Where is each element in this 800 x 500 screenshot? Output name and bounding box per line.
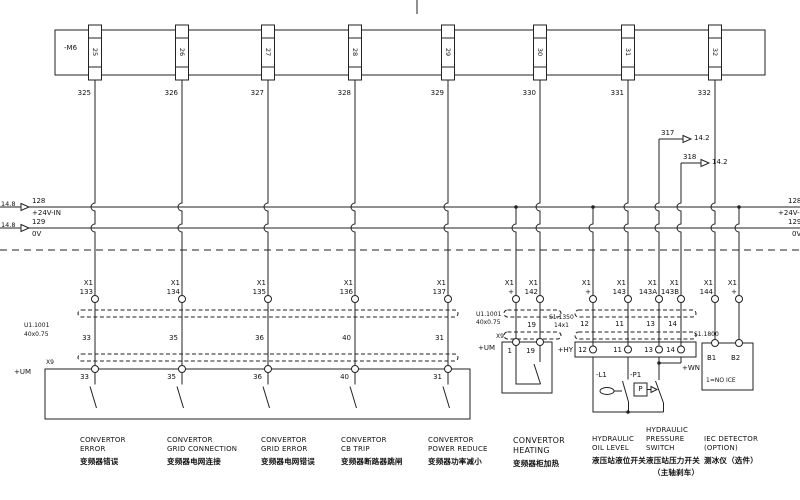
caption-line: SWITCH	[646, 444, 700, 453]
cable-wire-number: 19	[527, 321, 536, 329]
x1-label: X1	[670, 279, 679, 287]
x1-label: X1	[84, 279, 93, 287]
box-terminal-number: 19	[526, 347, 535, 355]
x1-label: X1	[529, 279, 538, 287]
caption-line: CONVERTOR	[428, 436, 488, 445]
iec-device-tag: S1.1800	[694, 331, 719, 339]
device-tag-level-switch: -L1	[596, 371, 607, 379]
bus-number-right: 129	[788, 218, 800, 226]
caption-line: CONVERTOR	[167, 436, 237, 445]
caption-iec-detector: IEC DETECTOR (OPTION) 测冰仪（选件）	[704, 435, 758, 465]
wire-number: 326	[165, 89, 178, 97]
bus-label: 0V	[32, 230, 41, 238]
connector-label: X9	[496, 333, 504, 341]
box-terminal-number: 36	[253, 373, 262, 381]
caption-convertor-error: CONVERTOR ERROR 变频器错误	[80, 436, 126, 466]
x1-terminal-number: 135	[253, 288, 266, 296]
x1-terminal-number: +	[731, 288, 737, 296]
caption-zh: 变频器功率减小	[428, 457, 488, 466]
bus-ref: 14.8	[1, 221, 15, 229]
box-terminal-number: 31	[433, 373, 442, 381]
bus-label-right: +24V-IN	[778, 209, 800, 217]
supply-drop-wires	[512, 205, 741, 346]
box-terminal-number: 12	[578, 346, 587, 354]
caption-line: ERROR	[80, 445, 126, 454]
caption-power-reduce: CONVERTOR POWER REDUCE 变频器功率减小	[428, 436, 488, 466]
caption-line: PRESSURE	[646, 435, 700, 444]
x1-terminal-number: 144	[700, 288, 713, 296]
bus-24v	[0, 204, 800, 211]
caption-zh: 变频器断路器跳闸	[341, 457, 403, 466]
x1-label: X1	[344, 279, 353, 287]
cable-wire-number: 31	[435, 334, 444, 342]
cable-wire-number: 12	[580, 320, 589, 328]
rail-terminal-number: 30	[536, 44, 544, 60]
caption-oil-level: HYDRAULIC OIL LEVEL 液压站液位开关	[592, 435, 646, 465]
x1-label: X1	[171, 279, 180, 287]
caption-grid-error: CONVERTOR GRID ERROR 变频器电网错误	[261, 436, 315, 466]
caption-zh: 测冰仪（选件）	[704, 456, 758, 465]
location-label: +WN	[682, 364, 700, 372]
caption-line: CONVERTOR	[341, 436, 403, 445]
caption-line: OIL LEVEL	[592, 444, 646, 453]
box-terminal-number: 1	[508, 347, 512, 355]
bus-ref: 14.8	[1, 200, 15, 208]
caption-zh: 变频器柜加热	[513, 459, 565, 469]
iec-note: 1=NO ICE	[706, 377, 736, 385]
caption-zh: 变频器电网连接	[167, 457, 237, 466]
box-terminal-number: 13	[644, 346, 653, 354]
caption-line: CONVERTOR	[513, 436, 565, 446]
pressure-symbol: P	[634, 385, 647, 393]
x1-terminal-number: 143	[613, 288, 626, 296]
caption-line: CONVERTOR	[80, 436, 126, 445]
cable-name: U1.1001	[476, 311, 501, 319]
cable-wire-number: 35	[169, 334, 178, 342]
bus-label: +24V-IN	[32, 209, 61, 217]
caption-grid-connection: CONVERTOR GRID CONNECTION 变频器电网连接	[167, 436, 237, 466]
caption-line: IEC DETECTOR	[704, 435, 758, 444]
iec-terminal: B2	[731, 354, 740, 362]
caption-line: (OPTION)	[704, 444, 758, 453]
caption-zh: 液压站液位开关	[592, 456, 646, 465]
cable-wire-number: 13	[646, 320, 655, 328]
caption-zh: 变频器错误	[80, 457, 126, 466]
x1-terminal-number: 136	[340, 288, 353, 296]
wire-number: 327	[251, 89, 264, 97]
x1-label: X1	[257, 279, 266, 287]
x1-label: X1	[617, 279, 626, 287]
box-terminal-number: 11	[613, 346, 622, 354]
iec-terminal: B1	[707, 354, 716, 362]
x1-terminal-number: 134	[167, 288, 180, 296]
x1-label: X1	[704, 279, 713, 287]
rail-terminal-number: 29	[444, 44, 452, 60]
box-terminal-number: 35	[167, 373, 176, 381]
x1-terminal-number: 133	[80, 288, 93, 296]
rail-name: -M6	[64, 44, 77, 52]
cable-name: S1.1350	[549, 314, 574, 322]
box-terminal-number: 40	[340, 373, 349, 381]
caption-line: HYDRAULIC	[646, 426, 700, 435]
crossref-dest: 14.2	[694, 134, 710, 142]
cable-name: U1.1001	[24, 322, 49, 330]
bus-number: 129	[32, 218, 45, 226]
rail-terminal-number: 32	[711, 44, 719, 60]
rail-terminal-number: 27	[264, 44, 272, 60]
location-label: +UM	[478, 344, 495, 352]
crossref-wire-number: 318	[683, 153, 696, 161]
wire-number: 332	[698, 89, 711, 97]
caption-line: GRID CONNECTION	[167, 445, 237, 454]
caption-cb-trip: CONVERTOR CB TRIP 变频器断路器跳闸	[341, 436, 403, 466]
x1-label: X1	[505, 279, 514, 287]
x1-terminal-number: 137	[433, 288, 446, 296]
terminal-rail	[55, 25, 765, 80]
x1-terminal-number: 143A	[639, 288, 657, 296]
cable-size: 40x0.75	[476, 319, 501, 327]
cable-wire-number: 33	[82, 334, 91, 342]
x1-terminal-number: +	[508, 288, 514, 296]
caption-zh: （主轴刹车）	[653, 468, 700, 477]
caption-zh: 液压站压力开关	[646, 456, 700, 465]
crossref-wire-number: 317	[661, 129, 674, 137]
caption-line: CONVERTOR	[261, 436, 315, 445]
rail-terminal-number: 31	[624, 44, 632, 60]
x1-terminal-circles	[92, 296, 743, 303]
bus-number: 128	[32, 197, 45, 205]
x1-label: X1	[582, 279, 591, 287]
caption-line: HYDRAULIC	[592, 435, 646, 444]
caption-line: HEATING	[513, 446, 565, 456]
bus-0v	[0, 225, 800, 232]
x1-terminal-number: 143B	[661, 288, 679, 296]
cable-wire-number: 36	[255, 334, 264, 342]
x1-label: X1	[728, 279, 737, 287]
rail-terminal-number: 26	[178, 44, 186, 60]
cable-wire-number: 11	[615, 320, 624, 328]
cable-wire-number: 14	[668, 320, 677, 328]
wire-number: 330	[523, 89, 536, 97]
rail-terminal-number: 25	[91, 44, 99, 60]
wire-number: 328	[338, 89, 351, 97]
caption-pressure-switch: HYDRAULIC PRESSURE SWITCH 液压站压力开关 （主轴刹车）	[646, 426, 700, 477]
cable-size: 40x0.75	[24, 331, 49, 339]
rail-terminal-number: 28	[351, 44, 359, 60]
box-terminal-number: 14	[666, 346, 675, 354]
bus-number-right: 128	[788, 197, 800, 205]
connector-label: X9	[46, 359, 54, 367]
location-label: +HY	[558, 346, 573, 354]
x1-terminal-number: 142	[525, 288, 538, 296]
schematic-linework	[0, 0, 800, 500]
cable-size: 14x1	[554, 322, 569, 330]
x1-terminal-number: +	[585, 288, 591, 296]
caption-line: POWER REDUCE	[428, 445, 488, 454]
crossref-dest: 14.2	[712, 158, 728, 166]
caption-line: GRID ERROR	[261, 445, 315, 454]
box-terminal-number: 33	[80, 373, 89, 381]
caption-heating: CONVERTOR HEATING 变频器柜加热	[513, 436, 565, 469]
x1-label: X1	[437, 279, 446, 287]
crossref-wires	[655, 136, 709, 347]
caption-zh: 变频器电网错误	[261, 457, 315, 466]
bus-label-right: 0V	[792, 230, 800, 238]
x1-label: X1	[648, 279, 657, 287]
schematic-page: -M6 25 26 27 28 29 30 31 32 325 326 327 …	[0, 0, 800, 500]
wire-number: 325	[78, 89, 91, 97]
cable-wire-number: 40	[342, 334, 351, 342]
caption-line: CB TRIP	[341, 445, 403, 454]
wire-number: 331	[611, 89, 624, 97]
wire-number: 329	[431, 89, 444, 97]
location-label: +UM	[14, 368, 31, 376]
device-tag-pressure-switch: -P1	[630, 371, 641, 379]
